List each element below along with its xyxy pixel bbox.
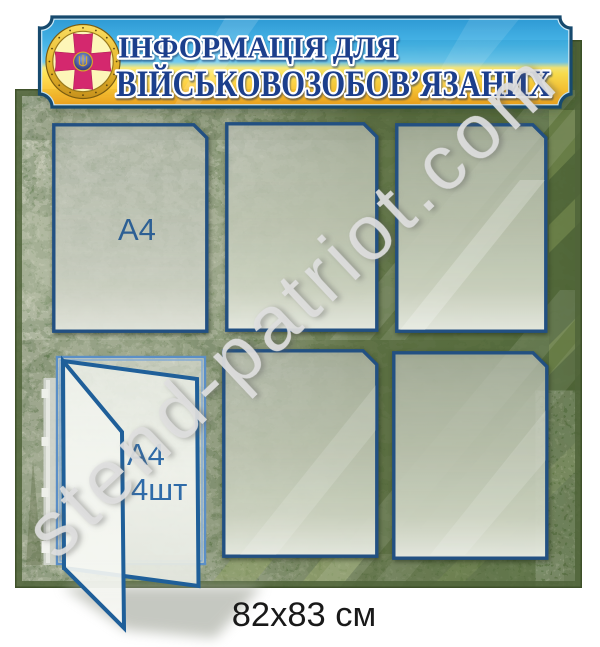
svg-text:82х83 см: 82х83 см xyxy=(232,596,377,634)
svg-text:А4: А4 xyxy=(118,212,156,247)
svg-text:ІНФОРМАЦІЯ ДЛЯ: ІНФОРМАЦІЯ ДЛЯ xyxy=(118,31,397,65)
